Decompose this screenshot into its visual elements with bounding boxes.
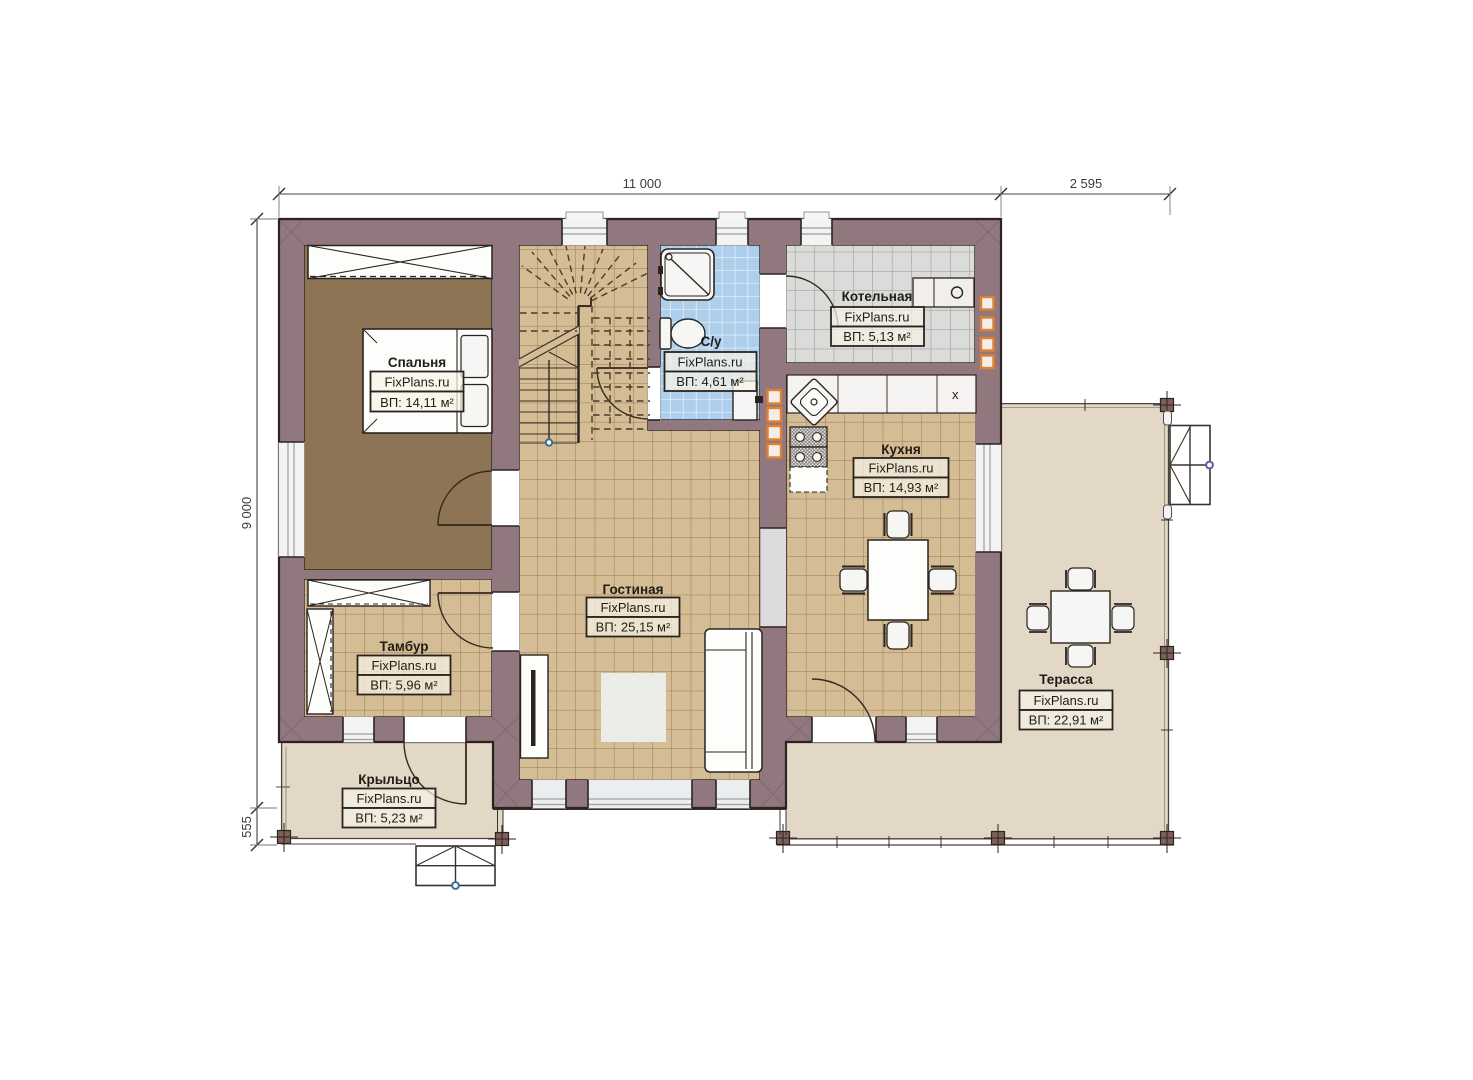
svg-text:FixPlans.ru: FixPlans.ru (1033, 693, 1098, 708)
svg-text:Кухня: Кухня (881, 442, 920, 457)
svg-text:Тамбур: Тамбур (380, 639, 429, 654)
svg-text:ВП: 14,11 м²: ВП: 14,11 м² (380, 395, 454, 410)
svg-text:Спальня: Спальня (388, 355, 446, 370)
svg-text:С/у: С/у (700, 334, 722, 349)
svg-text:FixPlans.ru: FixPlans.ru (371, 658, 436, 673)
svg-text:ВП: 5,23 м²: ВП: 5,23 м² (355, 811, 423, 826)
svg-text:Котельная: Котельная (842, 289, 913, 304)
svg-text:ВП: 5,13 м²: ВП: 5,13 м² (843, 329, 911, 344)
svg-text:9 000: 9 000 (239, 497, 254, 530)
svg-text:FixPlans.ru: FixPlans.ru (600, 600, 665, 615)
svg-text:FixPlans.ru: FixPlans.ru (677, 355, 742, 370)
svg-text:FixPlans.ru: FixPlans.ru (384, 375, 449, 390)
svg-text:ВП: 5,96 м²: ВП: 5,96 м² (370, 678, 438, 693)
svg-text:Терасса: Терасса (1039, 672, 1093, 687)
svg-text:11 000: 11 000 (623, 176, 662, 191)
svg-text:ВП: 25,15 м²: ВП: 25,15 м² (596, 620, 671, 635)
svg-text:FixPlans.ru: FixPlans.ru (844, 310, 909, 325)
svg-text:х: х (952, 387, 959, 402)
svg-text:Крыльцо: Крыльцо (358, 772, 419, 787)
svg-text:ВП: 22,91 м²: ВП: 22,91 м² (1029, 713, 1104, 728)
svg-text:FixPlans.ru: FixPlans.ru (868, 461, 933, 476)
svg-text:FixPlans.ru: FixPlans.ru (356, 791, 421, 806)
svg-text:555: 555 (239, 816, 254, 838)
svg-text:ВП: 14,93 м²: ВП: 14,93 м² (864, 480, 939, 495)
svg-text:ВП: 4,61 м²: ВП: 4,61 м² (676, 374, 744, 389)
svg-text:2 595: 2 595 (1070, 176, 1103, 191)
svg-text:Гостиная: Гостиная (602, 582, 663, 597)
